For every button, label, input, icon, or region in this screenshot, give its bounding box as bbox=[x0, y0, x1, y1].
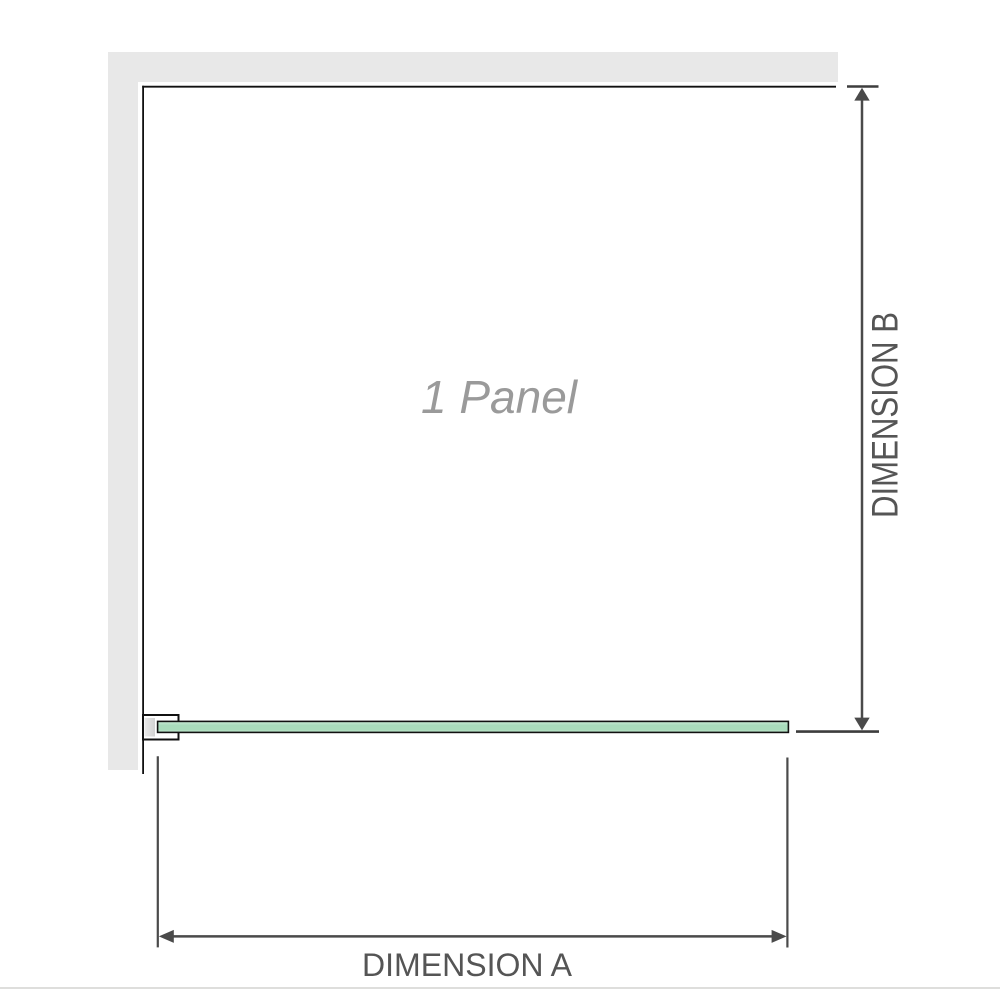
svg-text:DIMENSION B: DIMENSION B bbox=[865, 312, 906, 518]
svg-text:DIMENSION A: DIMENSION A bbox=[362, 947, 573, 983]
svg-text:1 Panel: 1 Panel bbox=[421, 371, 579, 423]
